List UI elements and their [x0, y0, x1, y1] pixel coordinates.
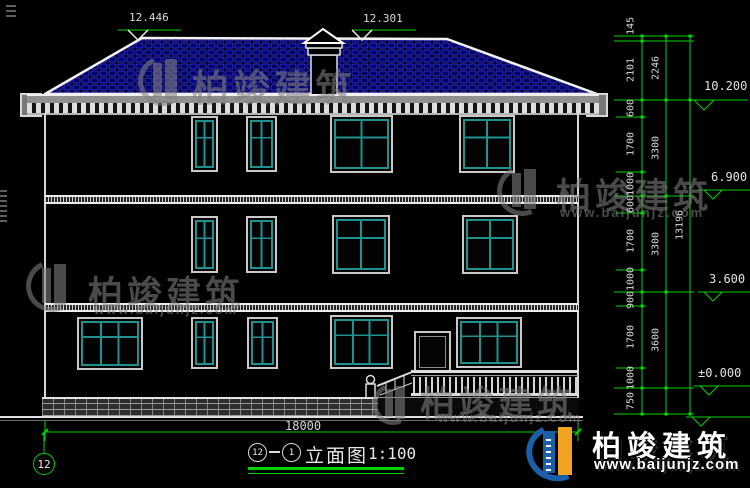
railing-top-rail [411, 370, 578, 373]
window-f2-narrow-1 [191, 216, 218, 273]
dim-145: 145 [626, 17, 637, 35]
dim-900: 900 [626, 291, 637, 309]
title-underline-thick [248, 467, 404, 470]
window-f1-wide-mid [330, 315, 393, 369]
window-f2-narrow-2 [246, 216, 277, 273]
level-6900: 6.900 [711, 170, 747, 184]
window-f3-narrow-1 [191, 116, 218, 172]
watermark-logo-icon [138, 56, 188, 106]
dim-1000: 1000 [626, 267, 637, 291]
dim-18000: 18000 [285, 419, 321, 433]
dim-1000: 1000 [626, 366, 637, 390]
brick-base [42, 397, 378, 416]
level-0000: ±0.000 [698, 366, 741, 380]
dim-1700: 1700 [626, 229, 637, 253]
dim-600: 600 [626, 99, 637, 117]
dim-1700: 1700 [626, 325, 637, 349]
title-name: 立面图 [305, 441, 368, 468]
level-3600: 3.600 [709, 272, 745, 286]
title-axis-a: 12 [248, 443, 267, 462]
window-f1-narrow-2 [247, 317, 278, 369]
watermark-brand: 柏竣建筑 [192, 58, 356, 112]
dim-3600: 3600 [651, 328, 662, 352]
dim-3300: 3300 [651, 136, 662, 160]
dim-1700: 1700 [626, 132, 637, 156]
logo-building-orange [558, 427, 572, 475]
brand-logo-icon [524, 423, 588, 483]
dim-3300: 3300 [651, 232, 662, 256]
logo-building-blue [543, 431, 555, 473]
title-underline-thin [248, 473, 404, 474]
top-elevation-left: 12.446 [129, 11, 169, 24]
dim-2246: 2246 [651, 56, 662, 80]
watermark-url: www.baijunjz.com [94, 302, 238, 317]
watermark-logo-icon [372, 383, 414, 425]
dim-overall-13196: 13196 [675, 210, 686, 240]
watermark-logo-icon [26, 260, 78, 312]
watermark-logo-icon [497, 166, 547, 216]
window-f1-narrow-1 [191, 317, 218, 369]
title-scale: 1:100 [368, 444, 416, 463]
brand-logo-url: www.baijunjz.com [594, 456, 739, 473]
dim-600: 600 [626, 195, 637, 213]
window-f2-wide-2 [462, 215, 518, 274]
window-f3-narrow-2 [246, 116, 277, 172]
window-f3-wide-2 [459, 115, 515, 173]
watermark-fragment-top [6, 3, 16, 17]
window-f1-wide-right [456, 317, 522, 368]
window-f1-wide-left [77, 317, 143, 370]
level-10200: 10.200 [704, 79, 747, 93]
dim-1000: 1000 [626, 172, 637, 196]
window-f3-wide-1 [330, 115, 393, 173]
wall-right-edge [577, 113, 579, 398]
title-axis-b: 1 [282, 443, 301, 462]
window-f2-wide-1 [332, 215, 390, 274]
watermark-fragment-left [0, 190, 7, 222]
dim-750: 750 [626, 392, 637, 410]
title-dash [269, 451, 280, 453]
wall-left-edge [44, 113, 46, 398]
entry-door [414, 331, 451, 373]
elevation-drawing: 柏竣建筑 柏竣建筑 www.baijunjz.com 柏竣建筑 www.baij… [0, 0, 750, 488]
top-elevation-right: 12.301 [363, 12, 403, 25]
dim-2101: 2101 [626, 58, 637, 82]
axis-bubble-12: 12 [33, 453, 55, 475]
